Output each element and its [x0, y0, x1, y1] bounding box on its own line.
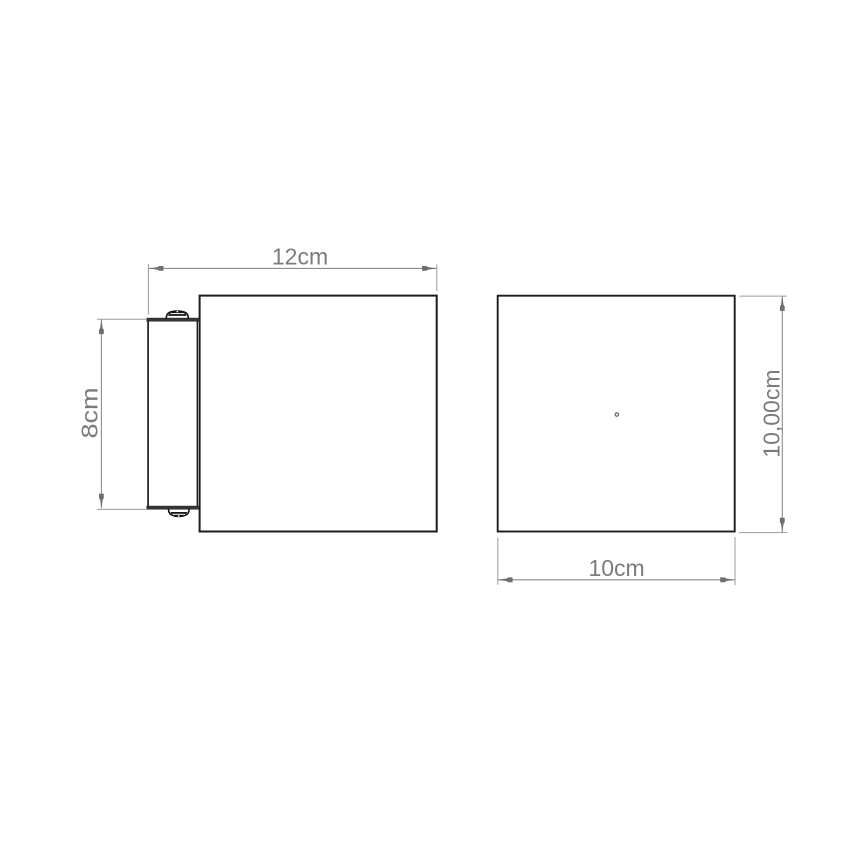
svg-text:10cm: 10cm — [588, 555, 644, 581]
svg-text:8cm: 8cm — [77, 388, 103, 439]
svg-text:12cm: 12cm — [272, 244, 328, 270]
svg-text:10,00cm: 10,00cm — [759, 369, 785, 457]
